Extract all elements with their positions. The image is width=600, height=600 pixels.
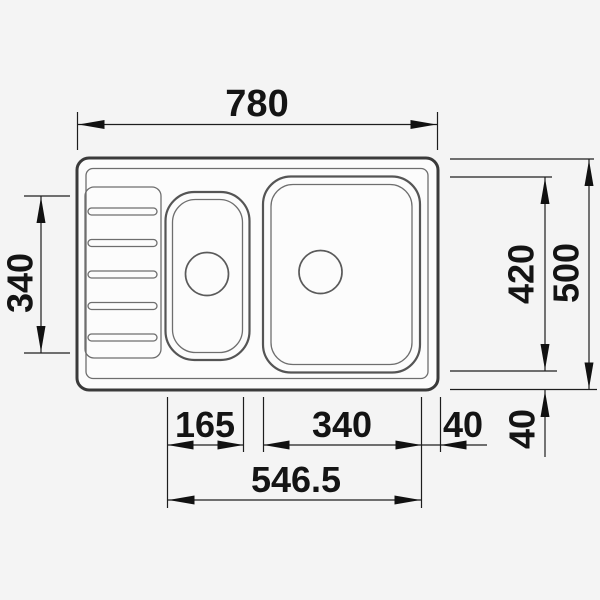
arrowhead — [411, 120, 437, 129]
arrowhead — [264, 441, 290, 450]
dim-depth-420: 420 — [450, 177, 557, 371]
dim-label-40-vertical: 40 — [502, 409, 543, 449]
dim-label-500: 500 — [546, 243, 587, 303]
sink-outer-edge — [77, 158, 438, 390]
dim-margin-40-horizontal: 40 — [441, 404, 484, 450]
arrowhead — [541, 344, 550, 370]
arrowhead — [37, 197, 46, 223]
dim-label-40-horizontal: 40 — [443, 404, 483, 445]
drawing-canvas: 780 340 420 500 40 — [0, 0, 600, 600]
sink-top-view — [77, 158, 438, 390]
dim-width-780: 780 — [78, 83, 438, 150]
dim-label-546-5: 546.5 — [251, 459, 341, 500]
arrowhead — [585, 160, 594, 186]
dim-margin-40-vertical: 40 — [502, 390, 550, 458]
dim-label-340-bottom: 340 — [312, 404, 372, 445]
arrowhead — [79, 120, 105, 129]
dim-small-bowl-165: 165 — [168, 404, 244, 450]
dim-length-340-left: 340 — [0, 196, 70, 353]
arrowhead — [396, 441, 422, 450]
dim-span-546-5: 546.5 — [168, 459, 422, 505]
arrowhead — [585, 363, 594, 389]
dim-label-780: 780 — [225, 83, 288, 125]
dim-label-420: 420 — [501, 244, 542, 304]
arrowhead — [37, 326, 46, 352]
dim-label-340-left: 340 — [0, 253, 41, 313]
arrowhead — [395, 496, 421, 505]
sink-technical-drawing: 780 340 420 500 40 — [0, 0, 600, 600]
arrowhead — [541, 178, 550, 204]
arrowhead — [169, 496, 195, 505]
dim-label-165: 165 — [175, 404, 235, 445]
